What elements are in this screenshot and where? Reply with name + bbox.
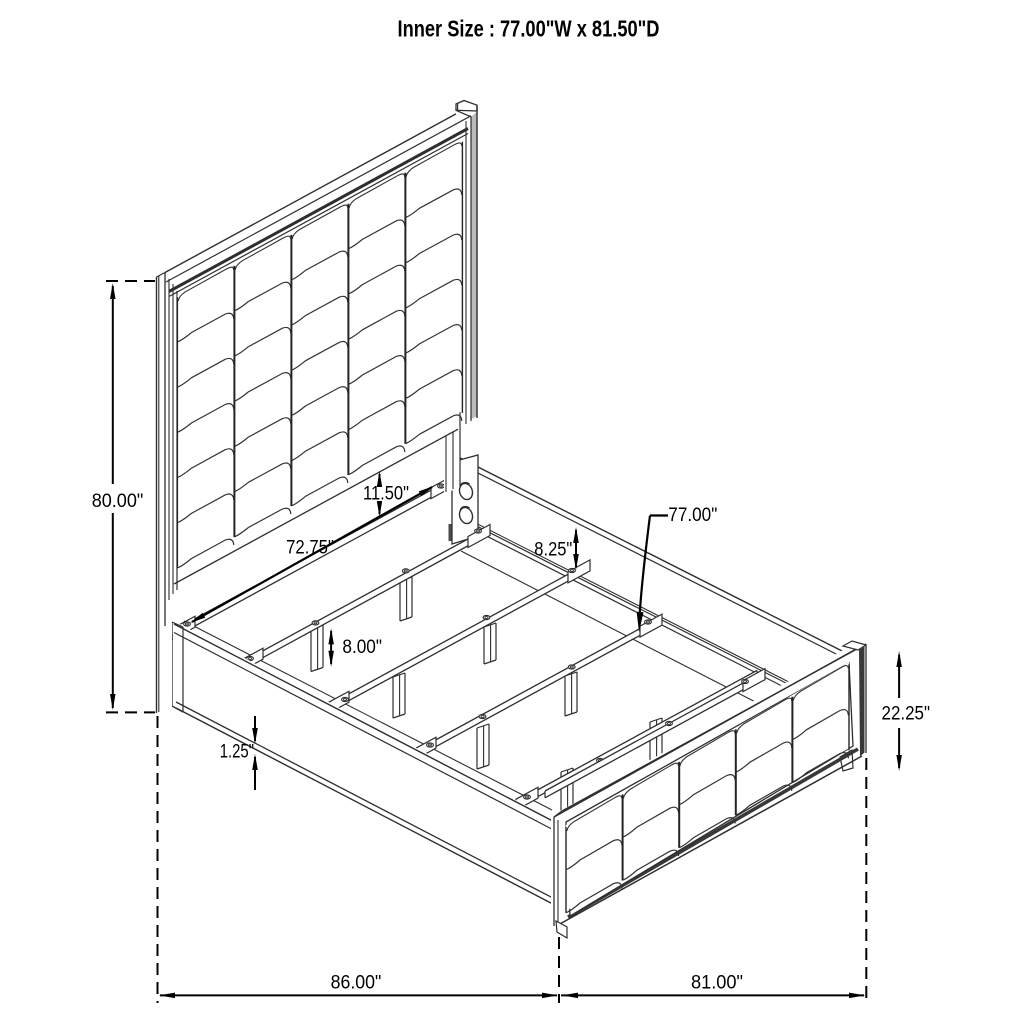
svg-text:Inner Size : 77.00"W x 81.50"D: Inner Size : 77.00"W x 81.50"D: [398, 16, 660, 42]
svg-text:77.00": 77.00": [668, 505, 717, 526]
svg-text:8.00": 8.00": [342, 637, 382, 658]
svg-text:72.75": 72.75": [286, 538, 334, 559]
svg-text:80.00": 80.00": [92, 491, 144, 512]
svg-text:8.25": 8.25": [534, 540, 572, 561]
svg-text:11.50": 11.50": [363, 484, 409, 505]
svg-text:81.00": 81.00": [691, 973, 743, 994]
svg-text:86.00": 86.00": [331, 973, 382, 994]
svg-text:22.25": 22.25": [882, 704, 931, 725]
svg-text:1.25": 1.25": [220, 742, 254, 763]
